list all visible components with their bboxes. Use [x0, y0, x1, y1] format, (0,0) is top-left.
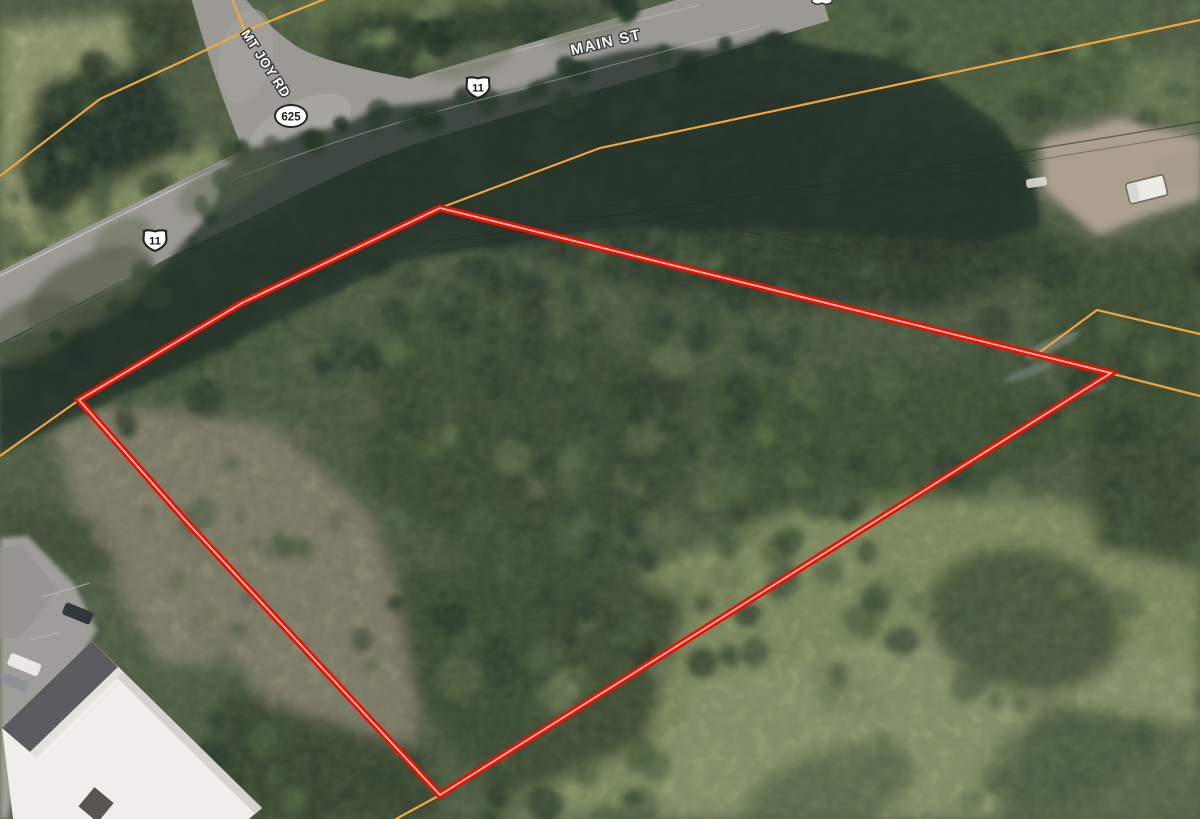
svg-text:625: 625: [281, 112, 301, 124]
svg-text:11: 11: [149, 236, 161, 248]
svg-text:11: 11: [472, 83, 484, 95]
